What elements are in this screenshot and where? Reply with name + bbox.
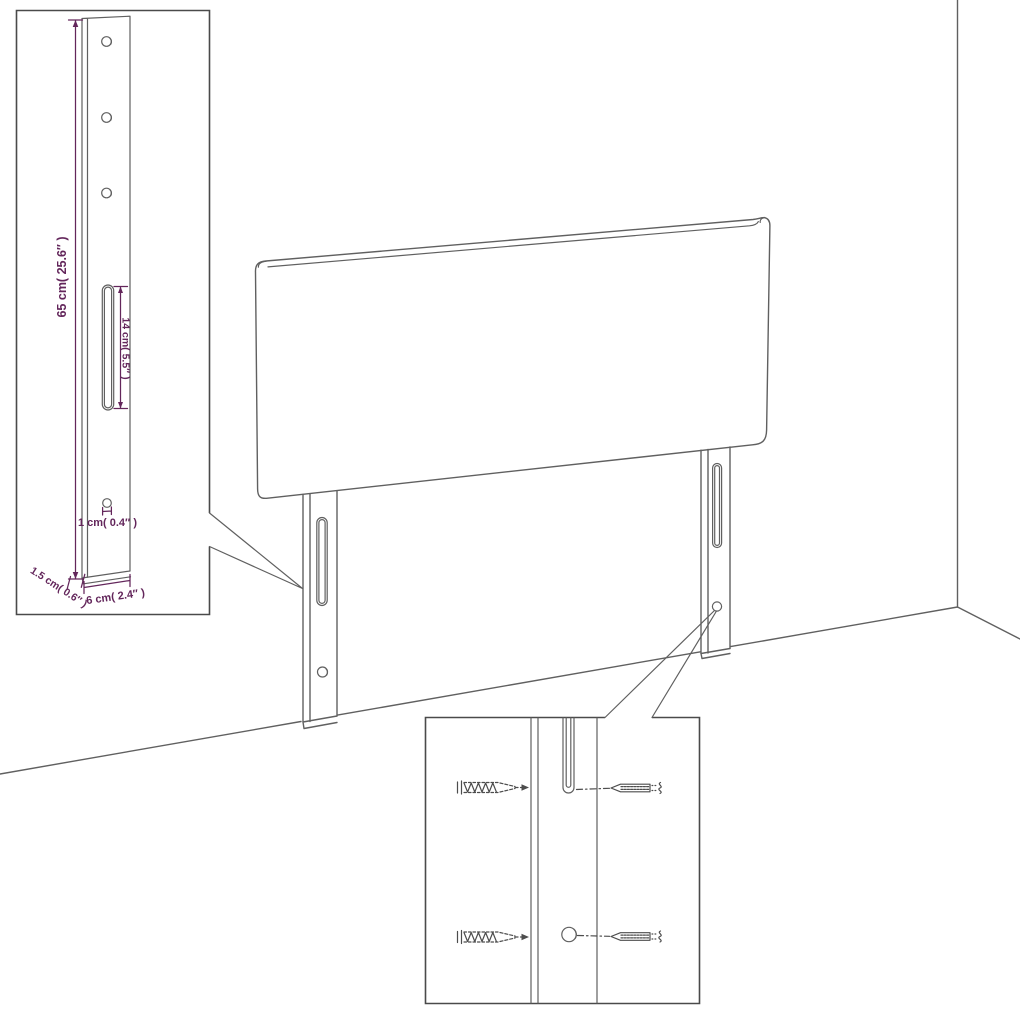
headboard-outline [255,218,769,499]
screw-detail-callout-lines [605,611,717,718]
right-leg-edges [701,447,730,654]
right-leg-hole [712,602,721,611]
headboard-panel [255,218,769,499]
right-leg-foot [701,649,730,659]
headboard-diagram: 65 cm( 25.6″ ) 14 cm( 5.5″ ) 1 cm( 0.4″ … [0,0,1020,1020]
left-leg-hole-shadow [326,669,327,675]
dimension-hole-label: 1 cm( 0.4″ ) [78,517,137,529]
diagram-canvas: 65 cm( 25.6″ ) 14 cm( 5.5″ ) 1 cm( 0.4″ … [0,0,1020,1020]
leg-detail-callout-lines [210,513,303,589]
right-leg-slot [713,464,722,548]
left-leg-slot-inner [319,520,325,604]
dimension-slot-label: 14 cm( 5.5″ ) [120,317,132,379]
left-leg-foot [303,716,337,729]
leg-detail-inset: 65 cm( 25.6″ ) 14 cm( 5.5″ ) 1 cm( 0.4″ … [17,11,210,615]
dimension-height-label: 65 cm( 25.6″ ) [55,236,69,317]
headboard-right-leg [701,447,730,659]
right-leg-slot-inner [715,466,720,546]
screw-bottom-leader-line [578,936,610,937]
headboard-top-edge-inner-line [268,222,758,267]
headboard-left-leg [303,491,337,729]
left-leg-edges [303,491,337,722]
floor-edge-right [958,607,1020,639]
screw-detail-inset [426,718,700,1004]
